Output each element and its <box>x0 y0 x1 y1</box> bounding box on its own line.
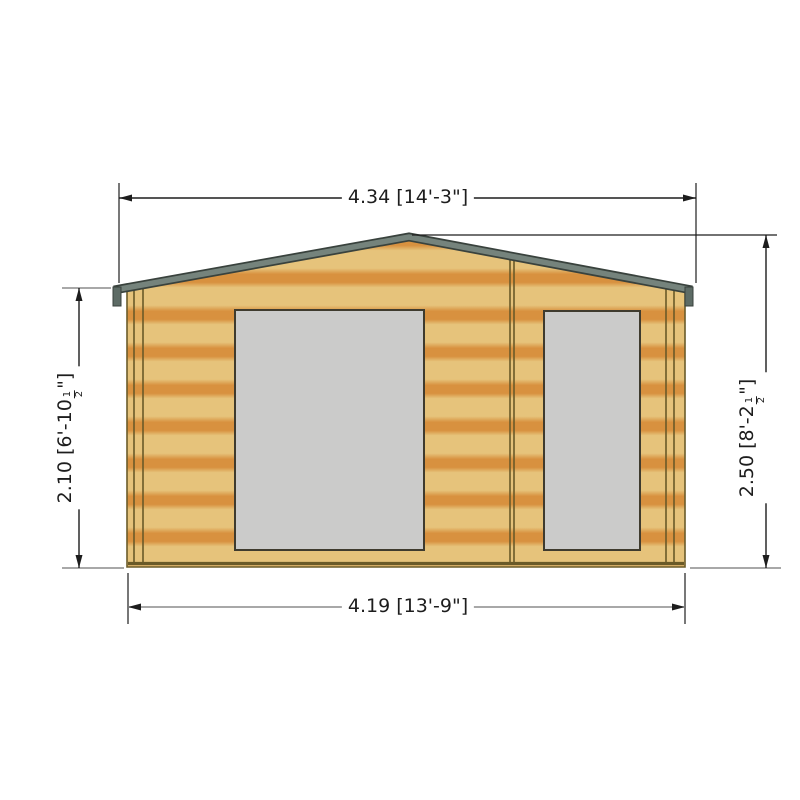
right-eave-end-tab <box>685 287 693 306</box>
elevation-canvas <box>0 0 800 800</box>
ridge-height-fraction: 12 <box>745 396 767 404</box>
bottom-dim-arrow-right <box>672 604 685 611</box>
fraction-denominator: 2 <box>75 390 86 398</box>
dimension-label-overall-width: 4.34 [14'-3"] <box>342 186 474 210</box>
fraction-denominator: 2 <box>757 396 768 404</box>
fraction-numerator: 1 <box>745 396 757 404</box>
narrow-window <box>544 311 640 550</box>
dimension-label-ridge-height: 2.50 [8'-212"] <box>736 373 768 504</box>
wall-height-fraction: 12 <box>63 390 85 398</box>
glazed-door-window <box>235 310 424 550</box>
fraction-numerator: 1 <box>63 390 75 398</box>
ridge-height-suffix: "] <box>736 379 758 395</box>
wall-height-value: 2.10 [6'-10 <box>54 399 76 503</box>
right-dim-arrow-top <box>763 235 770 248</box>
dimension-label-base-width: 4.19 [13'-9"] <box>342 595 474 619</box>
cabin-front-elevation-drawing: 4.34 [14'-3"] 4.19 [13'-9"] 2.10 [6'-101… <box>0 0 800 800</box>
wall-height-suffix: "] <box>54 373 76 389</box>
left-dim-arrow-top <box>76 288 83 301</box>
dimension-label-wall-height: 2.10 [6'-1012"] <box>54 367 86 510</box>
left-eave-end-tab <box>113 287 121 306</box>
bottom-dim-arrow-left <box>128 604 141 611</box>
top-dim-arrow-left <box>119 195 132 202</box>
right-dim-arrow-bottom <box>763 555 770 568</box>
top-dim-arrow-right <box>683 195 696 202</box>
ridge-height-value: 2.50 [8'-2 <box>736 405 758 497</box>
left-dim-arrow-bottom <box>76 555 83 568</box>
